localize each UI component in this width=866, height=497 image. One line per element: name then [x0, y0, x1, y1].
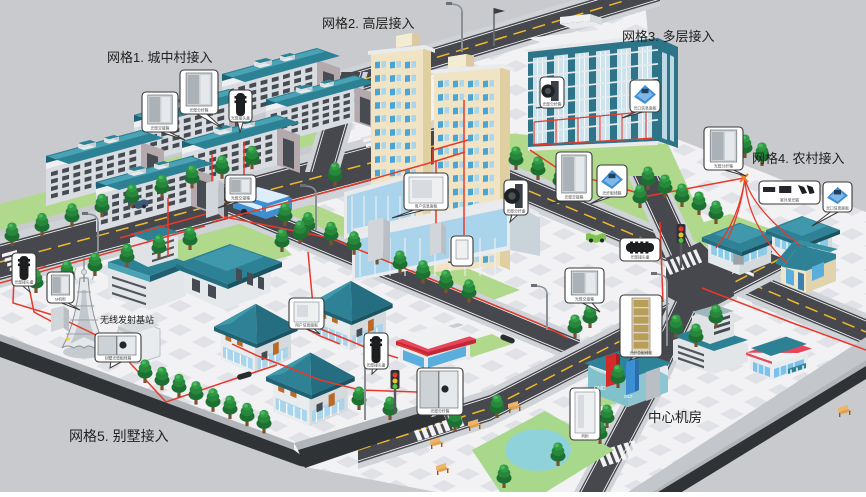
- svg-text:M机柜: M机柜: [55, 297, 66, 302]
- svg-text:光缆交接箱: 光缆交接箱: [575, 297, 594, 302]
- svg-text:光缆分纤箱: 光缆分纤箱: [431, 409, 450, 414]
- svg-text:光口信息面板: 光口信息面板: [826, 206, 849, 211]
- svg-text:光口信息面板: 光口信息面板: [634, 106, 657, 111]
- svg-text:光缆分纤盒: 光缆分纤盒: [507, 209, 526, 214]
- svg-text:网格5. 别墅接入: 网格5. 别墅接入: [69, 428, 169, 444]
- svg-text:网格1. 城中村接入: 网格1. 城中村接入: [107, 50, 212, 65]
- svg-text:光缆交接箱: 光缆交接箱: [151, 126, 170, 131]
- svg-text:光缆接头盒: 光缆接头盒: [15, 280, 34, 285]
- svg-text:室外型光猫: 室外型光猫: [780, 198, 799, 203]
- svg-text:光缆分纤箱: 光缆分纤箱: [714, 164, 733, 169]
- svg-text:用户信息面板: 用户信息面板: [295, 323, 318, 328]
- svg-text:光纤总配线架: 光纤总配线架: [630, 351, 653, 356]
- svg-text:别墅光缆配线箱: 别墅光缆配线箱: [105, 356, 132, 361]
- svg-text:光缆接头盒: 光缆接头盒: [231, 116, 250, 121]
- svg-text:网格3. 多层接入: 网格3. 多层接入: [622, 29, 714, 44]
- svg-text:中心机房: 中心机房: [648, 410, 702, 425]
- svg-text:光纤配线箱: 光纤配线箱: [603, 191, 622, 196]
- svg-text:光缆分纤箱: 光缆分纤箱: [543, 102, 562, 107]
- svg-text:光缆分纤箱: 光缆分纤箱: [190, 108, 209, 113]
- svg-text:OLT: OLT: [624, 394, 633, 399]
- svg-text:网格2. 高层接入: 网格2. 高层接入: [322, 16, 414, 31]
- svg-text:光缆接头盒: 光缆接头盒: [367, 363, 386, 368]
- svg-text:光缆交接箱: 光缆交接箱: [565, 195, 584, 200]
- svg-text:网格4. 农村接入: 网格4. 农村接入: [752, 151, 844, 166]
- svg-text:OMD: OMD: [594, 386, 606, 392]
- svg-text:光缆接头盒: 光缆接头盒: [631, 255, 650, 260]
- svg-text:列柜: 列柜: [581, 434, 589, 439]
- svg-text:用户信息面板: 用户信息面板: [415, 204, 438, 209]
- svg-text:无线发射基站: 无线发射基站: [100, 314, 154, 325]
- svg-text:光缆交接箱: 光缆交接箱: [231, 196, 250, 201]
